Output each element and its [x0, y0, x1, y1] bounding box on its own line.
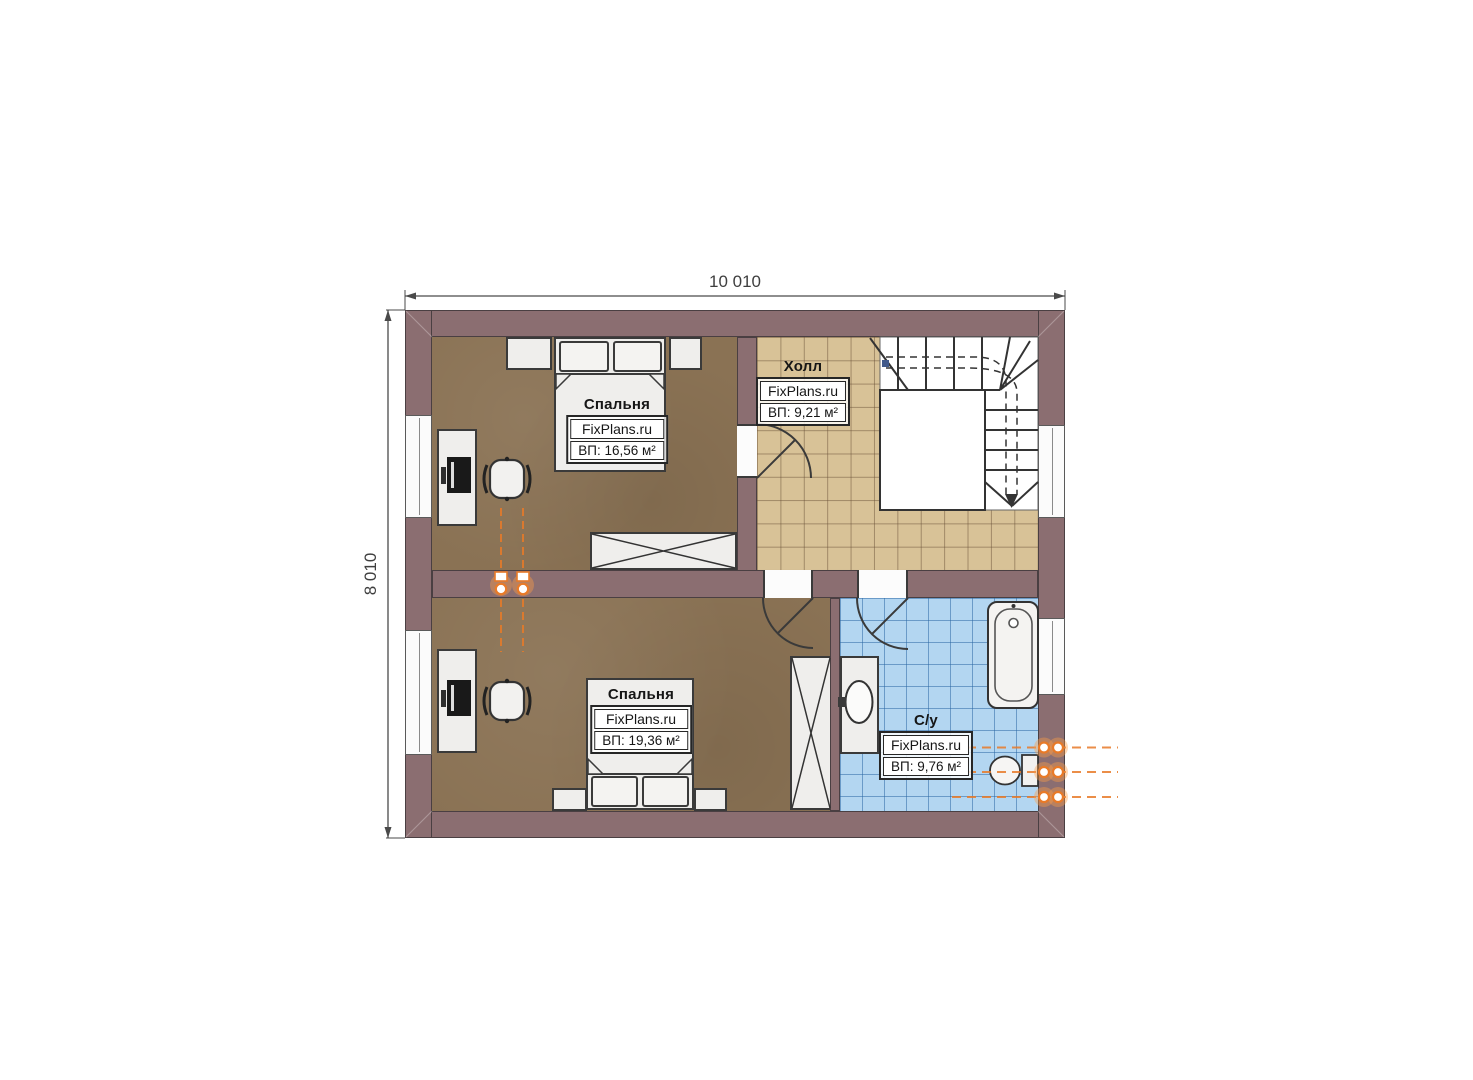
pillow — [591, 776, 638, 807]
pillow — [642, 776, 689, 807]
room-name: Спальня — [590, 686, 692, 703]
nightstand — [552, 788, 587, 811]
nightstand — [694, 788, 727, 811]
door-opening — [737, 424, 757, 478]
wall-bathroom-left — [830, 598, 840, 811]
door-opening — [857, 570, 908, 598]
dimension-label-left: 8 010 — [361, 553, 381, 596]
watermark-brand: FixPlans.ru — [760, 381, 846, 401]
room-info-box: FixPlans.ru ВП: 9,76 м² — [879, 731, 973, 780]
window — [1038, 425, 1065, 518]
door-opening — [763, 570, 813, 598]
desk — [437, 429, 477, 526]
window — [1038, 618, 1065, 695]
dimension-label-top: 10 010 — [709, 272, 761, 292]
room-area: ВП: 16,56 м² — [570, 441, 664, 460]
nightstand — [669, 337, 702, 370]
room-label-bathroom: С/у FixPlans.ru ВП: 9,76 м² — [879, 712, 973, 780]
room-area: ВП: 9,21 м² — [760, 403, 846, 422]
wardrobe — [790, 656, 832, 810]
room-info-box: FixPlans.ru ВП: 19,36 м² — [590, 705, 692, 754]
wardrobe — [590, 532, 737, 570]
sink-vanity — [840, 656, 879, 754]
wall-top — [405, 310, 1065, 337]
watermark-brand: FixPlans.ru — [594, 709, 688, 729]
room-label-hall: Холл FixPlans.ru ВП: 9,21 м² — [756, 358, 850, 426]
floor-plan: 10 010 8 010 Спальня FixPlans.ru ВП: 16,… — [0, 0, 1473, 1080]
window — [405, 630, 432, 755]
room-area: ВП: 19,36 м² — [594, 731, 688, 750]
wall-left — [405, 310, 432, 838]
room-name: Холл — [756, 358, 850, 375]
wall-bottom — [405, 811, 1065, 838]
room-label-bedroom-top: Спальня FixPlans.ru ВП: 16,56 м² — [566, 396, 668, 464]
wall-right — [1038, 310, 1065, 838]
room-info-box: FixPlans.ru ВП: 16,56 м² — [566, 415, 668, 464]
pillow — [559, 341, 609, 372]
desk — [437, 649, 477, 753]
pillow — [613, 341, 662, 372]
room-info-box: FixPlans.ru ВП: 9,21 м² — [756, 377, 850, 426]
room-label-bedroom-bottom: Спальня FixPlans.ru ВП: 19,36 м² — [590, 686, 692, 754]
wall-middle — [432, 570, 1038, 598]
nightstand — [506, 337, 552, 370]
room-name: Спальня — [566, 396, 668, 413]
room-name: С/у — [879, 712, 973, 729]
window — [405, 415, 432, 518]
watermark-brand: FixPlans.ru — [570, 419, 664, 439]
room-area: ВП: 9,76 м² — [883, 757, 969, 776]
watermark-brand: FixPlans.ru — [883, 735, 969, 755]
